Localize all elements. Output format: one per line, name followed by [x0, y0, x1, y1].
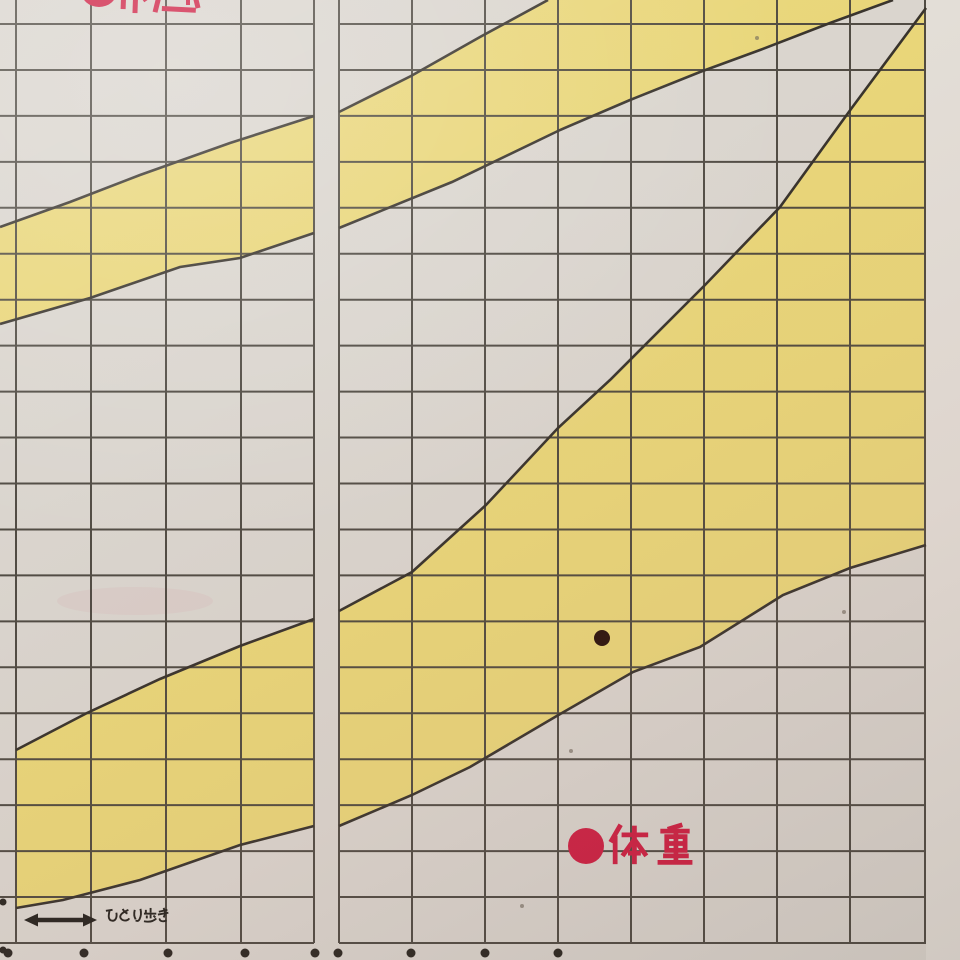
height-band-left-panel [0, 116, 314, 324]
paper-speck [569, 749, 573, 753]
print-through-smudge [57, 587, 213, 615]
walking-label-glyphs [106, 908, 168, 922]
growth-chart [0, 0, 960, 960]
page-margin-right [926, 0, 960, 960]
paper-speck [842, 610, 846, 614]
growth-chart-photo: ●身長 体重 ひとり歩き [0, 0, 960, 960]
height-label-cropped [81, 0, 201, 13]
weight-bullet-icon [568, 828, 604, 864]
paper-speck [755, 36, 759, 40]
paper-speck [520, 904, 524, 908]
weight-label-glyphs [611, 825, 693, 864]
walking-annotation [24, 908, 168, 927]
plotted-measurement-dot [594, 630, 610, 646]
axis-tick-dots [4, 949, 563, 958]
cropped-edge-mark [0, 899, 7, 906]
double-arrow-icon [24, 914, 97, 927]
